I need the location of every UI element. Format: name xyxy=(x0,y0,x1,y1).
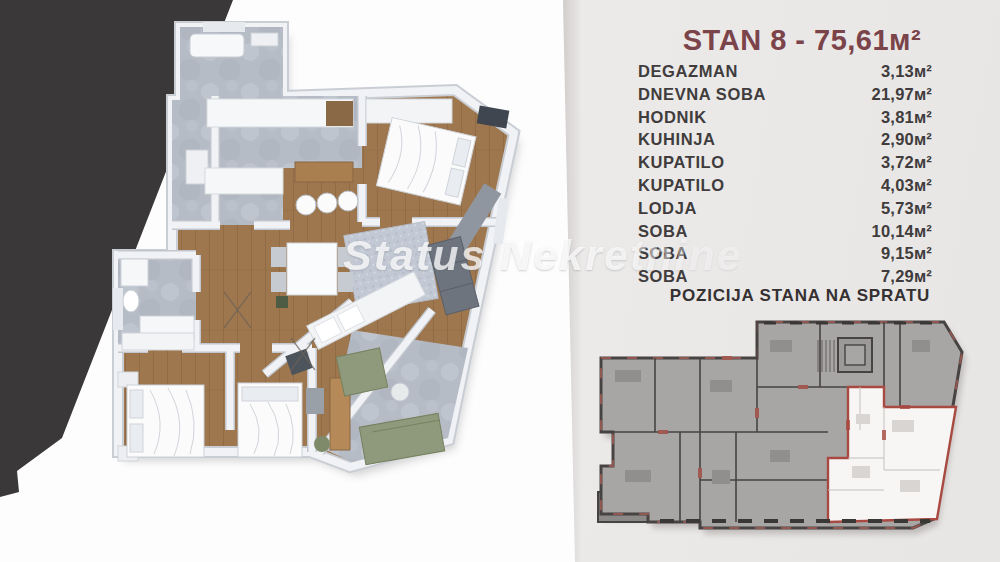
room-row: KUPATILO 4,03м² xyxy=(638,174,932,197)
room-row: SOBA 9,15м² xyxy=(638,242,932,265)
apartment-title: STAN 8 - 75,61м² xyxy=(612,24,992,57)
room-table: DEGAZMAN 3,13м² DNEVNA SOBA 21,97м² HODN… xyxy=(638,60,932,288)
room-area: 9,15м² xyxy=(881,242,932,265)
room-area: 3,13м² xyxy=(881,60,932,83)
room-row: SOBA 10,14м² xyxy=(638,220,932,243)
apartment-position-plan xyxy=(593,314,1000,562)
room-label: SOBA xyxy=(638,265,688,288)
room-row: KUPATILO 3,72м² xyxy=(638,151,932,174)
room-label: HODNIK xyxy=(638,106,707,129)
room-label: LODJA xyxy=(638,197,697,220)
room-area: 7,29м² xyxy=(881,265,932,288)
bedroom-b xyxy=(238,378,350,457)
position-heading: POZICIJA STANA NA SPRATU xyxy=(600,286,1000,306)
room-label: SOBA xyxy=(638,220,688,243)
room-row: SOBA 7,29м² xyxy=(638,265,932,288)
room-label: KUHINJA xyxy=(638,128,716,151)
room-label: KUPATILO xyxy=(638,174,725,197)
room-row: DEGAZMAN 3,13м² xyxy=(638,60,932,83)
stairwell xyxy=(818,338,872,372)
room-label: DEGAZMAN xyxy=(638,60,738,83)
room-row: LODJA 5,73м² xyxy=(638,197,932,220)
room-label: KUPATILO xyxy=(638,151,725,174)
room-row: DNEVNA SOBA 21,97м² xyxy=(638,83,932,106)
room-label: SOBA xyxy=(638,242,688,265)
highlighted-apartment xyxy=(828,387,956,522)
room-area: 5,73м² xyxy=(881,197,932,220)
room-row: KUHINJA 2,90м² xyxy=(638,128,932,151)
room-area: 3,72м² xyxy=(881,151,932,174)
room-label: DNEVNA SOBA xyxy=(638,83,766,106)
room-area: 2,90м² xyxy=(881,128,932,151)
room-area: 4,03м² xyxy=(881,174,932,197)
listing-image: STAN 8 - 75,61м² DEGAZMAN 3,13м² DNEVNA … xyxy=(0,0,1000,562)
room-row: HODNIK 3,81м² xyxy=(638,106,932,129)
room-area: 10,14м² xyxy=(872,220,932,243)
room-area: 21,97м² xyxy=(872,83,932,106)
room-area: 3,81м² xyxy=(881,106,932,129)
